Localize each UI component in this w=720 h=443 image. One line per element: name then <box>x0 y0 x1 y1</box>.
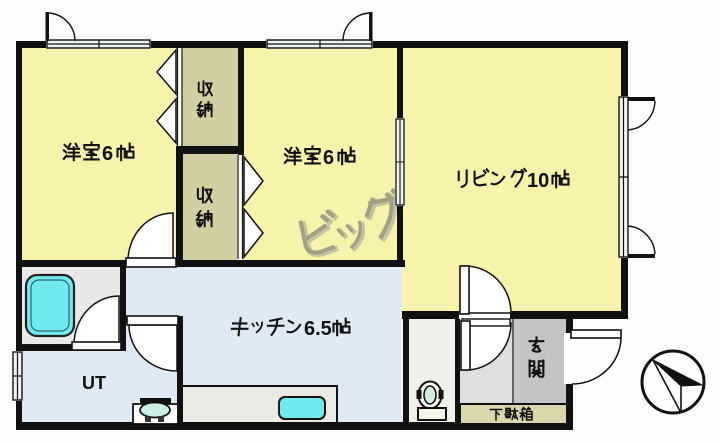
svg-text:6.5: 6.5 <box>304 318 332 340</box>
svg-text:6: 6 <box>102 143 113 165</box>
svg-text:6: 6 <box>323 147 334 169</box>
svg-text:10: 10 <box>527 170 549 192</box>
svg-text:UT: UT <box>82 373 106 393</box>
